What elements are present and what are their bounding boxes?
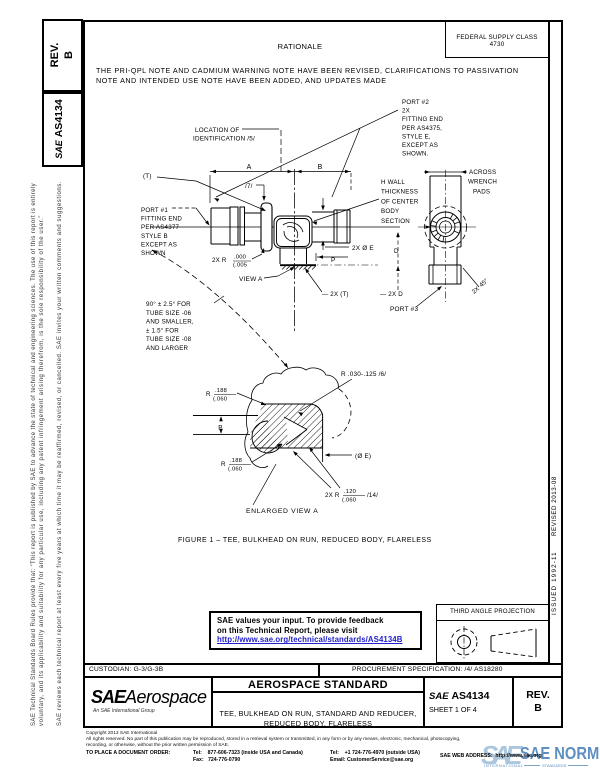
svg-text:PORT #3: PORT #3	[390, 306, 418, 313]
svg-text:R .030-.125 /6/: R .030-.125 /6/	[341, 371, 386, 378]
svg-text:STYLE E,: STYLE E,	[402, 133, 431, 140]
svg-text:FITTING END: FITTING END	[402, 116, 443, 123]
svg-text:THICKNESS: THICKNESS	[381, 189, 418, 196]
svg-text:AND SMALLER,: AND SMALLER,	[146, 319, 194, 326]
svg-text:2X R: 2X R	[212, 257, 227, 264]
svg-text:SECTION: SECTION	[381, 218, 410, 225]
svg-text:EXCEPT AS: EXCEPT AS	[402, 142, 438, 149]
svg-text:B: B	[318, 164, 323, 171]
svg-text:2X: 2X	[471, 285, 481, 295]
svg-text:IDENTIFICATION /5/: IDENTIFICATION /5/	[193, 136, 255, 143]
svg-text:2X R: 2X R	[325, 492, 340, 499]
svg-text:AND LARGER: AND LARGER	[146, 345, 189, 352]
svg-text:2X Ø E: 2X Ø E	[352, 245, 374, 252]
svg-text:± 1.5° FOR: ± 1.5° FOR	[146, 327, 179, 334]
svg-text:.188: .188	[215, 388, 227, 394]
svg-text:45°: 45°	[478, 277, 490, 289]
svg-text:ENLARGED VIEW A: ENLARGED VIEW A	[246, 508, 318, 515]
svg-text:EXCEPT AS: EXCEPT AS	[141, 241, 177, 248]
svg-text:90° ± 2.5° FOR: 90° ± 2.5° FOR	[146, 301, 191, 308]
svg-text:(.060: (.060	[213, 397, 227, 403]
svg-text:(.005: (.005	[233, 263, 247, 269]
svg-text:PER AS4375,: PER AS4375,	[402, 125, 442, 132]
svg-text:PADS: PADS	[473, 188, 490, 195]
svg-text:PORT #1: PORT #1	[141, 207, 168, 214]
svg-text:PER AS4377: PER AS4377	[141, 224, 179, 231]
svg-text:(T): (T)	[143, 173, 152, 180]
svg-text:TUBE SIZE -08: TUBE SIZE -08	[146, 336, 192, 343]
svg-text:.188: .188	[230, 458, 242, 464]
svg-text:FIGURE 1 – TEE, BULKHEAD ON RU: FIGURE 1 – TEE, BULKHEAD ON RUN, REDUCED…	[178, 537, 432, 544]
svg-text:P: P	[218, 425, 222, 432]
svg-text:/14/: /14/	[367, 492, 378, 499]
svg-text:/7/: /7/	[245, 183, 253, 190]
svg-text:(.060: (.060	[342, 498, 356, 504]
svg-text:R: R	[221, 461, 226, 468]
svg-text:.120: .120	[344, 489, 356, 495]
svg-text:VIEW A: VIEW A	[239, 276, 263, 283]
svg-text:A: A	[247, 164, 252, 171]
svg-text:2X: 2X	[402, 108, 410, 115]
svg-text:LOCATION OF: LOCATION OF	[195, 127, 239, 134]
svg-text:P: P	[331, 257, 336, 264]
svg-text:ACROSS: ACROSS	[469, 169, 496, 176]
svg-text:BODY: BODY	[381, 208, 399, 215]
svg-text:H WALL: H WALL	[381, 179, 405, 186]
svg-text:PORT #2: PORT #2	[402, 99, 429, 106]
svg-text:(.060: (.060	[228, 467, 242, 473]
svg-text:R: R	[206, 391, 211, 398]
svg-text:SHOWN.: SHOWN.	[402, 151, 429, 158]
svg-text:— 2X (T): — 2X (T)	[322, 291, 349, 298]
svg-text:STYLE B: STYLE B	[141, 233, 168, 240]
svg-text:FITTING END: FITTING END	[141, 216, 182, 223]
svg-text:OF CENTER: OF CENTER	[381, 198, 419, 205]
svg-text:WRENCH: WRENCH	[468, 179, 497, 186]
svg-text:TUBE SIZE -06: TUBE SIZE -06	[146, 310, 192, 317]
svg-text:(Ø E): (Ø E)	[355, 453, 371, 460]
svg-text:.000: .000	[234, 255, 246, 261]
svg-text:— 2X D: — 2X D	[380, 291, 403, 298]
